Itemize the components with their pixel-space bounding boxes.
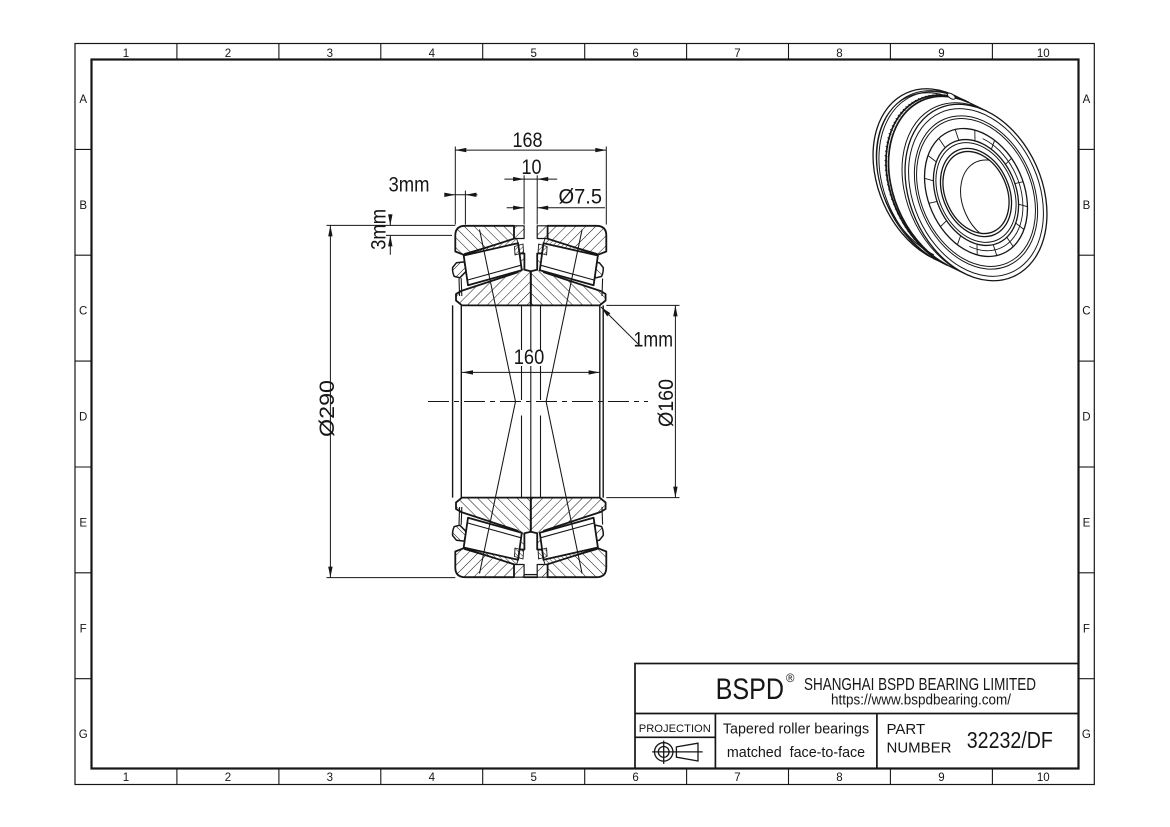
svg-text:8: 8	[836, 772, 842, 784]
svg-text:10: 10	[522, 155, 542, 179]
svg-text:4: 4	[429, 772, 436, 784]
svg-text:D: D	[1082, 412, 1090, 424]
svg-text:E: E	[1083, 517, 1091, 529]
svg-text:Tapered roller bearings: Tapered roller bearings	[723, 722, 869, 738]
svg-text:C: C	[1082, 306, 1090, 318]
svg-text:Ø290: Ø290	[315, 380, 339, 437]
svg-text:D: D	[79, 412, 87, 424]
svg-text:matched face-to-face: matched face-to-face	[727, 745, 865, 761]
svg-text:https://www.bspdbearing.com/: https://www.bspdbearing.com/	[831, 693, 1012, 709]
svg-text:PART: PART	[887, 721, 926, 738]
svg-text:BSPD: BSPD	[716, 673, 785, 706]
svg-text:3mm: 3mm	[389, 173, 430, 197]
svg-text:5: 5	[530, 48, 536, 60]
svg-text:7: 7	[734, 772, 740, 784]
svg-text:Ø160: Ø160	[654, 379, 678, 427]
svg-text:8: 8	[836, 48, 842, 60]
svg-text:4: 4	[429, 48, 436, 60]
svg-text:160: 160	[514, 345, 545, 369]
svg-text:A: A	[79, 94, 87, 106]
svg-text:3: 3	[327, 772, 333, 784]
svg-text:3mm: 3mm	[367, 209, 391, 250]
svg-text:1mm: 1mm	[634, 328, 674, 352]
svg-text:Ø7.5: Ø7.5	[559, 185, 603, 209]
svg-text:SHANGHAI BSPD BEARING LIMITED: SHANGHAI BSPD BEARING LIMITED	[804, 674, 1036, 694]
svg-text:9: 9	[938, 48, 944, 60]
svg-text:1: 1	[123, 772, 129, 784]
svg-text:G: G	[1082, 729, 1091, 741]
svg-text:3: 3	[327, 48, 333, 60]
svg-text:1: 1	[123, 48, 129, 60]
svg-text:168: 168	[513, 128, 543, 152]
svg-text:10: 10	[1037, 772, 1050, 784]
svg-text:B: B	[79, 200, 87, 212]
svg-text:C: C	[79, 306, 87, 318]
svg-text:G: G	[79, 729, 88, 741]
svg-text:NUMBER: NUMBER	[887, 740, 952, 757]
svg-text:6: 6	[632, 48, 638, 60]
svg-text:32232/DF: 32232/DF	[967, 727, 1053, 753]
svg-text:E: E	[79, 517, 87, 529]
svg-text:F: F	[1083, 623, 1090, 635]
svg-text:®: ®	[786, 673, 795, 685]
svg-text:10: 10	[1037, 48, 1050, 60]
svg-text:9: 9	[938, 772, 944, 784]
svg-text:2: 2	[225, 48, 231, 60]
svg-text:PROJECTION: PROJECTION	[639, 723, 711, 735]
svg-text:A: A	[1083, 94, 1091, 106]
svg-text:6: 6	[632, 772, 638, 784]
svg-text:7: 7	[734, 48, 740, 60]
svg-text:B: B	[1083, 200, 1091, 212]
svg-text:2: 2	[225, 772, 231, 784]
svg-text:F: F	[80, 623, 87, 635]
svg-text:5: 5	[530, 772, 536, 784]
